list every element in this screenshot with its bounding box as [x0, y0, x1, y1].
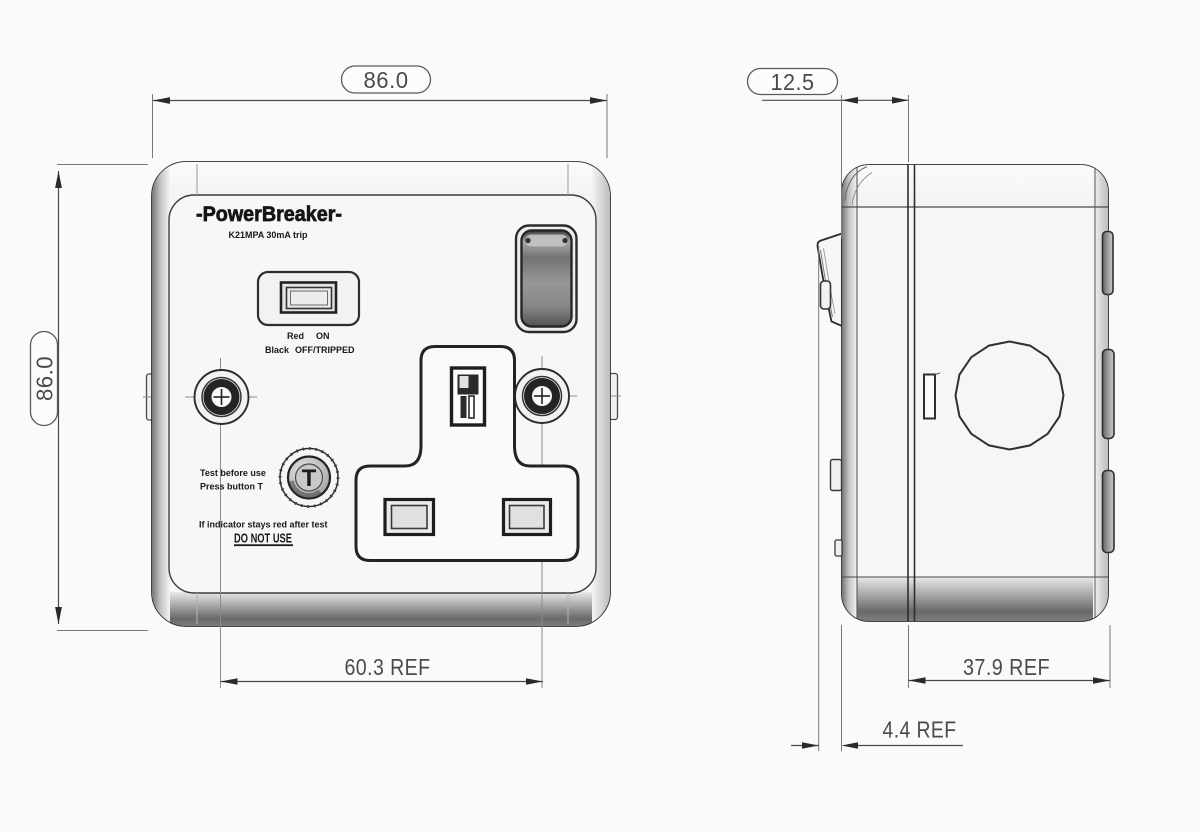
- svg-text:37.9 REF: 37.9 REF: [963, 654, 1050, 680]
- svg-text:T: T: [302, 465, 317, 492]
- svg-text:12.5: 12.5: [771, 69, 815, 95]
- svg-text:Red: Red: [287, 331, 304, 341]
- svg-text:4.4 REF: 4.4 REF: [883, 717, 957, 743]
- svg-text:K21MPA 30mA trip: K21MPA 30mA trip: [229, 230, 308, 240]
- svg-text:DO NOT USE: DO NOT USE: [234, 531, 292, 546]
- svg-text:Test before use: Test before use: [200, 468, 266, 478]
- svg-text:Press button T: Press button T: [200, 482, 264, 492]
- svg-text:86.0: 86.0: [364, 67, 409, 93]
- svg-text:60.3 REF: 60.3 REF: [345, 654, 431, 680]
- svg-text:ON: ON: [316, 331, 330, 341]
- svg-text:86.0: 86.0: [32, 356, 58, 401]
- svg-text:OFF/TRIPPED: OFF/TRIPPED: [295, 345, 355, 355]
- svg-text:If indicator stays red after t: If indicator stays red after test: [199, 520, 328, 530]
- svg-text:Black: Black: [265, 345, 290, 355]
- svg-text:-PowerBreaker-: -PowerBreaker-: [196, 203, 342, 226]
